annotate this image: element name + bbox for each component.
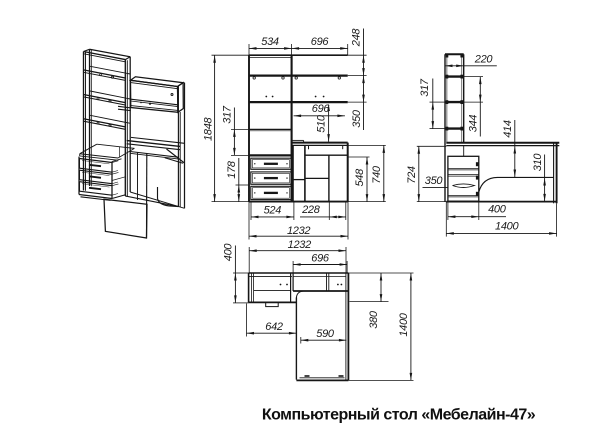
svg-text:1400: 1400 [495,220,519,232]
svg-text:740: 740 [371,165,383,184]
svg-text:1848: 1848 [203,116,215,140]
svg-text:548: 548 [354,168,366,187]
svg-text:400: 400 [223,243,235,262]
svg-text:1232: 1232 [287,225,310,237]
svg-text:400: 400 [488,204,507,216]
svg-text:524: 524 [264,204,282,216]
svg-text:248: 248 [350,28,362,48]
svg-text:1400: 1400 [398,312,410,336]
svg-text:414: 414 [502,120,514,138]
svg-text:228: 228 [301,204,321,216]
svg-text:344: 344 [468,115,480,133]
svg-text:1232: 1232 [288,239,311,251]
svg-text:696: 696 [311,252,330,264]
svg-text:380: 380 [368,310,380,329]
svg-text:642: 642 [265,321,283,333]
svg-text:317: 317 [419,78,431,97]
svg-text:350: 350 [425,175,444,187]
svg-text:220: 220 [474,54,494,66]
svg-text:Компьютерный стол «Мебелайн-47: Компьютерный стол «Мебелайн-47» [262,406,536,423]
svg-text:510: 510 [316,114,328,133]
svg-text:590: 590 [316,328,335,340]
svg-text:350: 350 [351,109,363,128]
svg-text:178: 178 [226,160,238,179]
svg-text:310: 310 [532,153,544,172]
svg-text:696: 696 [311,36,330,48]
svg-text:724: 724 [406,166,418,184]
svg-text:317: 317 [222,105,234,124]
svg-text:534: 534 [261,36,279,48]
